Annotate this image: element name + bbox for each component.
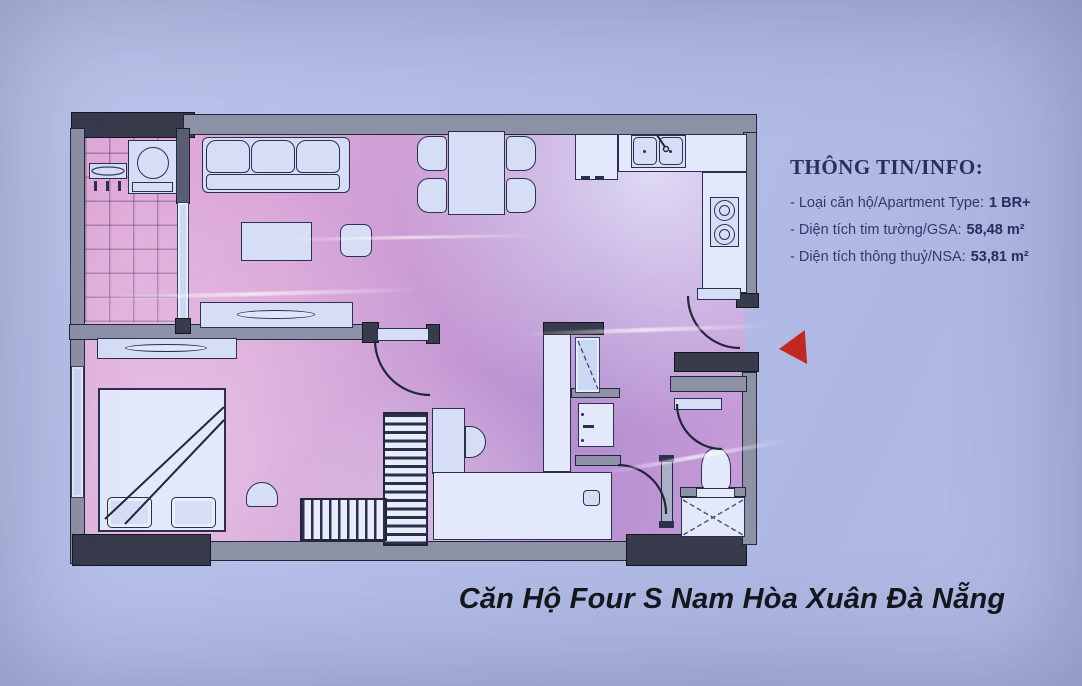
dining-chair <box>417 178 447 213</box>
toilet-bowl <box>701 448 731 492</box>
bathroom-partition-wall <box>543 328 571 472</box>
door-hinge <box>659 521 674 528</box>
gsa-value: 58,48 m² <box>967 222 1025 238</box>
bedroom-window <box>71 366 84 498</box>
wc-wall-top <box>670 376 747 392</box>
coffee-table <box>241 222 312 261</box>
bedroom-door-leaf <box>377 328 429 341</box>
door-stopper <box>583 490 600 506</box>
wardrobe <box>383 412 428 546</box>
fridge-handle <box>595 176 604 180</box>
floor-plan <box>69 108 760 568</box>
nsa-value: 53,81 m² <box>971 249 1029 265</box>
entrance-arrow <box>778 330 807 366</box>
wall-left <box>70 128 85 564</box>
drying-rack-leg <box>106 181 109 191</box>
entry-frame-bottom <box>674 352 759 372</box>
vanity-lower-shelf <box>575 455 621 466</box>
sofa-cushion <box>206 140 250 173</box>
door-hinge <box>659 455 674 462</box>
info-panel: THÔNG TIN/INFO: - Loại căn hộ/Apartment … <box>790 155 1075 271</box>
pillow <box>107 497 152 528</box>
info-list: - Loại căn hộ/Apartment Type:1 BR+ - Diệ… <box>790 190 1075 271</box>
wall-bottom-dark-left <box>72 534 211 566</box>
info-item-gsa: - Diện tích tim tường/GSA:58,48 m² <box>790 217 1075 244</box>
bathroom-door-leaf <box>661 460 673 522</box>
bathroom-wall-top-cap <box>543 322 604 335</box>
apartment-type-value: 1 BR+ <box>989 195 1031 211</box>
faucet-handle <box>583 425 594 428</box>
sink-drain <box>643 150 646 153</box>
sofa-cushion <box>251 140 295 173</box>
info-heading: THÔNG TIN/INFO: <box>790 155 1075 180</box>
bedside-pouf <box>246 482 278 507</box>
drying-rack-leg <box>94 181 97 191</box>
fridge <box>575 134 618 180</box>
drying-rack-leg <box>118 181 121 191</box>
sofa-cushion <box>296 140 340 173</box>
bedroom-tv-set <box>125 344 207 352</box>
shower-tray <box>681 497 745 537</box>
sofa-seat <box>206 174 340 190</box>
dining-chair <box>417 136 447 171</box>
entry-door-leaf <box>697 288 741 300</box>
stove-burner-inner <box>719 229 730 240</box>
info-item-nsa: - Diện tích thông thuỷ/NSA:53,81 m² <box>790 244 1075 271</box>
dining-table <box>448 131 505 215</box>
dining-chair <box>506 136 536 171</box>
tv-set <box>237 310 315 319</box>
washing-machine-drum <box>137 147 169 179</box>
vanity-mirror <box>575 337 600 393</box>
faucet-dot <box>581 413 584 416</box>
balcony-partition-wall <box>176 128 190 204</box>
drying-rack <box>89 163 127 179</box>
side-table <box>340 224 372 257</box>
pillow <box>171 497 216 528</box>
faucet-dot <box>581 439 584 442</box>
washing-machine-tray <box>132 182 173 192</box>
wc-door-leaf <box>674 398 722 410</box>
fridge-handle <box>581 176 590 180</box>
info-item-apartment-type: - Loại căn hộ/Apartment Type:1 BR+ <box>790 190 1075 217</box>
stove-burner-inner <box>719 205 730 216</box>
balcony-partition-cap <box>175 318 191 334</box>
dining-chair <box>506 178 536 213</box>
hanging-wardrobe <box>300 498 387 541</box>
balcony-sliding-window <box>177 202 189 322</box>
sink-drain <box>669 150 672 153</box>
wall-bottom-dark-right <box>626 534 747 566</box>
shoe-cabinet <box>433 472 612 540</box>
project-caption: Căn Hộ Four S Nam Hòa Xuân Đà Nẵng <box>402 583 1062 616</box>
desk <box>432 408 465 474</box>
